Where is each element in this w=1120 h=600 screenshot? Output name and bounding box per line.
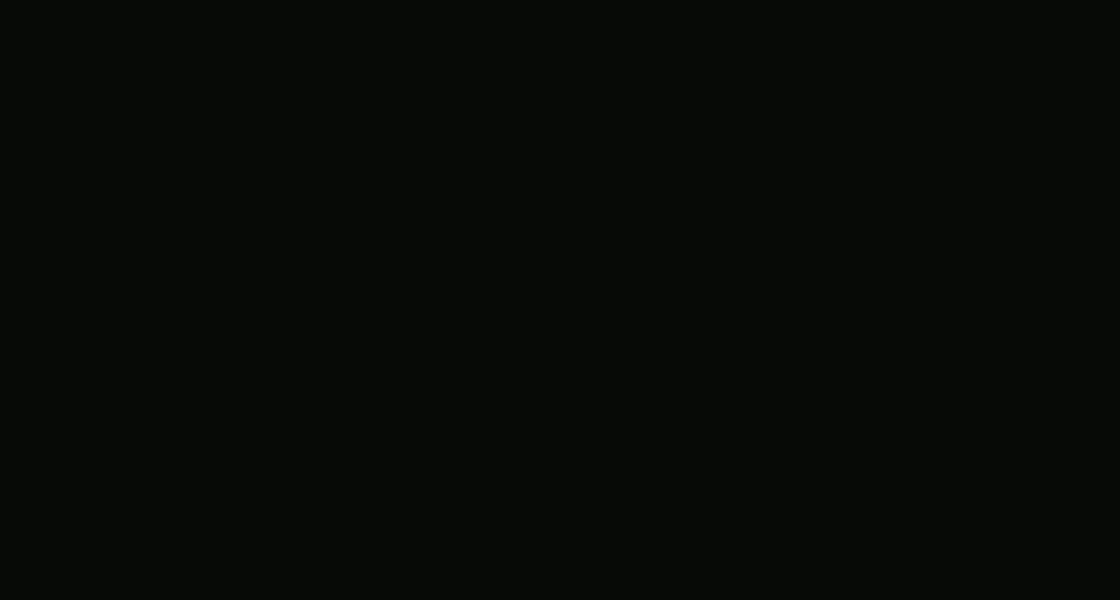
aerial-night-render bbox=[0, 0, 1120, 600]
screenshot-stage bbox=[0, 0, 1120, 600]
